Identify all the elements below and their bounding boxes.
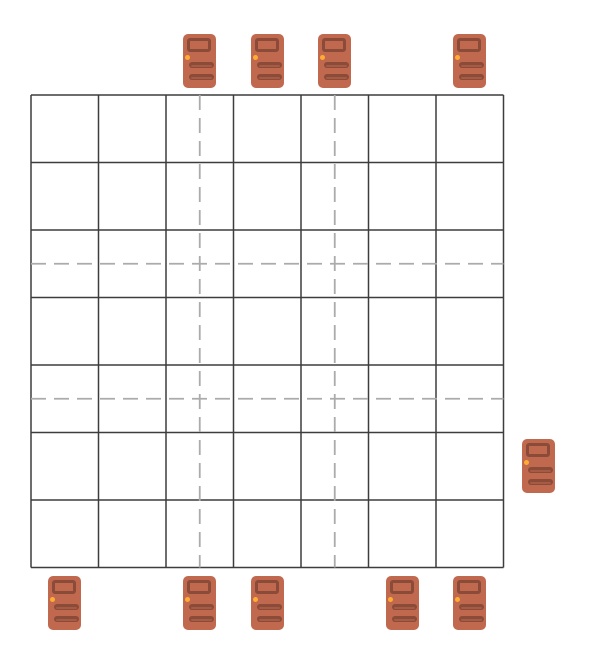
grid-cell[interactable] [369, 95, 437, 163]
door-panel [54, 604, 79, 610]
grid-cell[interactable] [31, 365, 99, 433]
grid-cell[interactable] [234, 298, 302, 366]
door-icon[interactable] [453, 576, 486, 630]
grid-cell[interactable] [301, 365, 369, 433]
grid-cell[interactable] [436, 433, 504, 501]
door-panel [257, 74, 282, 80]
grid-cell[interactable] [234, 230, 302, 298]
door-icon[interactable] [318, 34, 351, 88]
grid-cell[interactable] [166, 163, 234, 231]
grid-cell[interactable] [99, 230, 167, 298]
door-panel [392, 604, 417, 610]
door-window [390, 580, 414, 594]
door-panel [189, 62, 214, 68]
door-window [187, 38, 211, 52]
grid-cell[interactable] [31, 500, 99, 568]
grid-cell[interactable] [31, 433, 99, 501]
grid-cell[interactable] [301, 500, 369, 568]
door-window [187, 580, 211, 594]
door-knob [320, 55, 325, 60]
door-panel [189, 604, 214, 610]
door-knob [253, 597, 258, 602]
door-panel [54, 616, 79, 622]
door-knob [388, 597, 393, 602]
grid-cells [31, 95, 504, 568]
door-knob [185, 55, 190, 60]
grid-cell[interactable] [31, 298, 99, 366]
grid-cell[interactable] [369, 433, 437, 501]
door-panel [459, 74, 484, 80]
door-panel [189, 74, 214, 80]
door-panel [459, 604, 484, 610]
door-icon[interactable] [251, 34, 284, 88]
door-icon[interactable] [48, 576, 81, 630]
door-panel [324, 74, 349, 80]
grid-cell[interactable] [99, 298, 167, 366]
grid-cell[interactable] [99, 365, 167, 433]
door-window [255, 38, 279, 52]
door-knob [455, 597, 460, 602]
grid-cell[interactable] [369, 163, 437, 231]
door-icon[interactable] [183, 576, 216, 630]
grid-cell[interactable] [166, 298, 234, 366]
grid-cell[interactable] [99, 500, 167, 568]
door-panel [324, 62, 349, 68]
door-icon[interactable] [251, 576, 284, 630]
grid-cell[interactable] [99, 95, 167, 163]
grid-cell[interactable] [166, 365, 234, 433]
door-window [52, 580, 76, 594]
grid-cell[interactable] [301, 230, 369, 298]
door-icon[interactable] [522, 439, 555, 493]
grid-cell[interactable] [436, 230, 504, 298]
grid-cell[interactable] [301, 95, 369, 163]
door-knob [524, 460, 529, 465]
door-panel [257, 616, 282, 622]
door-panel [459, 62, 484, 68]
grid-cell[interactable] [166, 500, 234, 568]
door-panel [257, 604, 282, 610]
door-knob [50, 597, 55, 602]
grid-cell[interactable] [301, 163, 369, 231]
door-knob [253, 55, 258, 60]
grid-cell[interactable] [369, 500, 437, 568]
grid-cell[interactable] [166, 433, 234, 501]
grid-cell[interactable] [436, 365, 504, 433]
grid-cell[interactable] [99, 433, 167, 501]
grid-cell[interactable] [436, 500, 504, 568]
grid-cell[interactable] [301, 433, 369, 501]
grid-cell[interactable] [234, 433, 302, 501]
grid-cell[interactable] [99, 163, 167, 231]
door-panel [528, 467, 553, 473]
grid-cell[interactable] [436, 163, 504, 231]
door-panel [257, 62, 282, 68]
grid-cell[interactable] [166, 230, 234, 298]
grid-cell[interactable] [234, 500, 302, 568]
grid-cell[interactable] [166, 95, 234, 163]
door-window [457, 580, 481, 594]
door-knob [455, 55, 460, 60]
door-panel [459, 616, 484, 622]
door-window [457, 38, 481, 52]
door-panel [528, 479, 553, 485]
door-icon[interactable] [453, 34, 486, 88]
board [0, 0, 600, 670]
door-window [255, 580, 279, 594]
grid-cell[interactable] [31, 163, 99, 231]
grid-cell[interactable] [234, 163, 302, 231]
door-knob [185, 597, 190, 602]
grid-cell[interactable] [436, 298, 504, 366]
door-window [526, 443, 550, 457]
grid-cell[interactable] [31, 230, 99, 298]
door-panel [189, 616, 214, 622]
door-icon[interactable] [183, 34, 216, 88]
grid-cell[interactable] [234, 95, 302, 163]
grid-cell[interactable] [369, 298, 437, 366]
door-panel [392, 616, 417, 622]
grid-cell[interactable] [234, 365, 302, 433]
grid-cell[interactable] [301, 298, 369, 366]
grid-cell[interactable] [31, 95, 99, 163]
door-icon[interactable] [386, 576, 419, 630]
door-window [322, 38, 346, 52]
grid-cell[interactable] [436, 95, 504, 163]
grid-cell[interactable] [369, 230, 437, 298]
grid-cell[interactable] [369, 365, 437, 433]
